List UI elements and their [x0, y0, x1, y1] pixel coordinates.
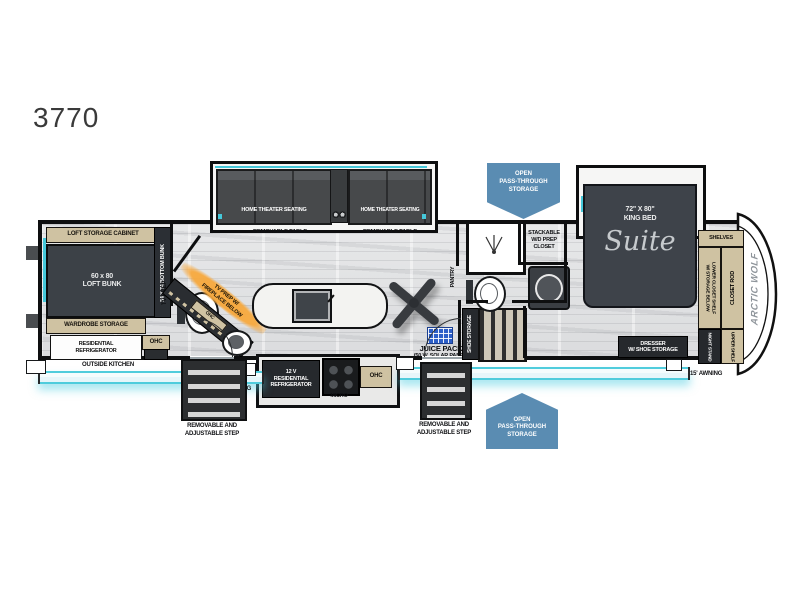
loft-storage-cabinet-label: LOFT STORAGE CABINET [46, 227, 160, 243]
bath-bottom-wall-b [512, 300, 566, 303]
entry-door-right-threshold [422, 357, 462, 359]
ohc-rear-label: OHC [142, 335, 170, 350]
lower-closet-shelf: LOWER CLOSET SHELF W/ STORAGE BELOW [698, 247, 721, 329]
fridge-12v-label: 12 V RESIDENTIAL REFRIGERATOR [262, 360, 320, 398]
front-cap-logo: ARCTIC WOLF [750, 252, 761, 326]
pass-through-badge-bottom: OPEN PASS-THROUGH STORAGE [486, 393, 558, 449]
home-theater-seating-label-left: HOME THEATER SEATING [241, 207, 306, 213]
rear-bumper-lower [26, 314, 38, 328]
stackable-wd-label: STACKABLE W/D PREP CLOSET [520, 230, 568, 251]
stairs-right-wall [523, 306, 526, 358]
range-stove [322, 358, 360, 396]
bath-bottom-wall-a [466, 300, 488, 303]
sofa-accent-2 [422, 214, 426, 219]
sofa-console [330, 169, 348, 223]
suite-script: Suite [604, 226, 675, 257]
micro-label: MICRO [320, 393, 358, 400]
outside-kitchen-griddle [144, 349, 168, 360]
pass-through-badge-top: OPEN PASS-THROUGH STORAGE [487, 163, 560, 219]
awning-bracket-3 [396, 357, 414, 370]
pass-through-badge-top-label: OPEN PASS-THROUGH STORAGE [499, 171, 547, 194]
shower-head-icon [483, 233, 505, 257]
pantry-label: PANTRY [450, 267, 456, 288]
entry-steps-left [181, 359, 247, 421]
awning-bracket-4 [666, 359, 682, 371]
entry-steps-right [420, 362, 472, 420]
wall-rear [38, 220, 42, 360]
dresser-label: DRESSER W/ SHOE STORAGE [618, 336, 688, 358]
pantry-wall [456, 224, 459, 266]
bath-bedroom-wall [564, 224, 567, 303]
bath-sink [535, 274, 563, 303]
residential-refrigerator-label: RESIDENTIAL REFRIGERATOR [50, 335, 142, 360]
wardrobe-storage-label: WARDROBE STORAGE [46, 318, 146, 334]
floorplan-3770: 3770 ARCTIC WOLF LOFT STORAGE CABINET 60… [0, 0, 800, 600]
outside-kitchen-label: OUTSIDE KITCHEN [62, 362, 154, 370]
night-stand: NIGHT STAND [698, 329, 721, 364]
upper-shelf: UPPER SHELF [721, 329, 744, 364]
pass-through-badge-bottom-label: OPEN PASS-THROUGH STORAGE [498, 417, 546, 440]
slide-accent-top [215, 166, 427, 168]
king-bed-label: 72" X 80" KING BED [624, 206, 657, 224]
step-label-left: REMOVABLE AND ADJUSTABLE STEP [152, 423, 272, 438]
model-number: 3770 [33, 100, 99, 135]
home-theater-sofa-right: HOME THEATER SEATING [348, 169, 432, 225]
removable-table-label-left: REMOVABLE TABLE [240, 229, 320, 236]
bedroom-stairs [478, 308, 527, 362]
home-theater-seating-label-right: HOME THEATER SEATING [361, 207, 420, 213]
sofa-accent-1 [218, 214, 222, 219]
removable-table-label-right: REMOVABLE TABLE [350, 229, 430, 236]
closet-rod: CLOSET ROD [721, 247, 744, 329]
fan-hub [409, 298, 419, 308]
step-label-right: REMOVABLE AND ADJUSTABLE STEP [396, 422, 492, 437]
island-sink [292, 289, 332, 323]
ceiling-fan [386, 275, 442, 331]
rear-bumper-upper [26, 246, 38, 260]
awning-right-label: 15' AWNING [690, 371, 742, 379]
wd-closet-wall-h [518, 262, 568, 265]
shelves-label: SHELVES [698, 230, 744, 247]
king-bed: 72" X 80" KING BED Suite [583, 184, 697, 308]
loft-bunk: 60 x 80 LOFT BUNK [46, 244, 158, 318]
awning-bracket-1 [26, 360, 46, 374]
home-theater-sofa-left: HOME THEATER SEATING [216, 169, 332, 225]
shoe-storage: SHOE STORAGE [462, 308, 479, 360]
ohc-kitchen-label: OHC [360, 366, 392, 388]
